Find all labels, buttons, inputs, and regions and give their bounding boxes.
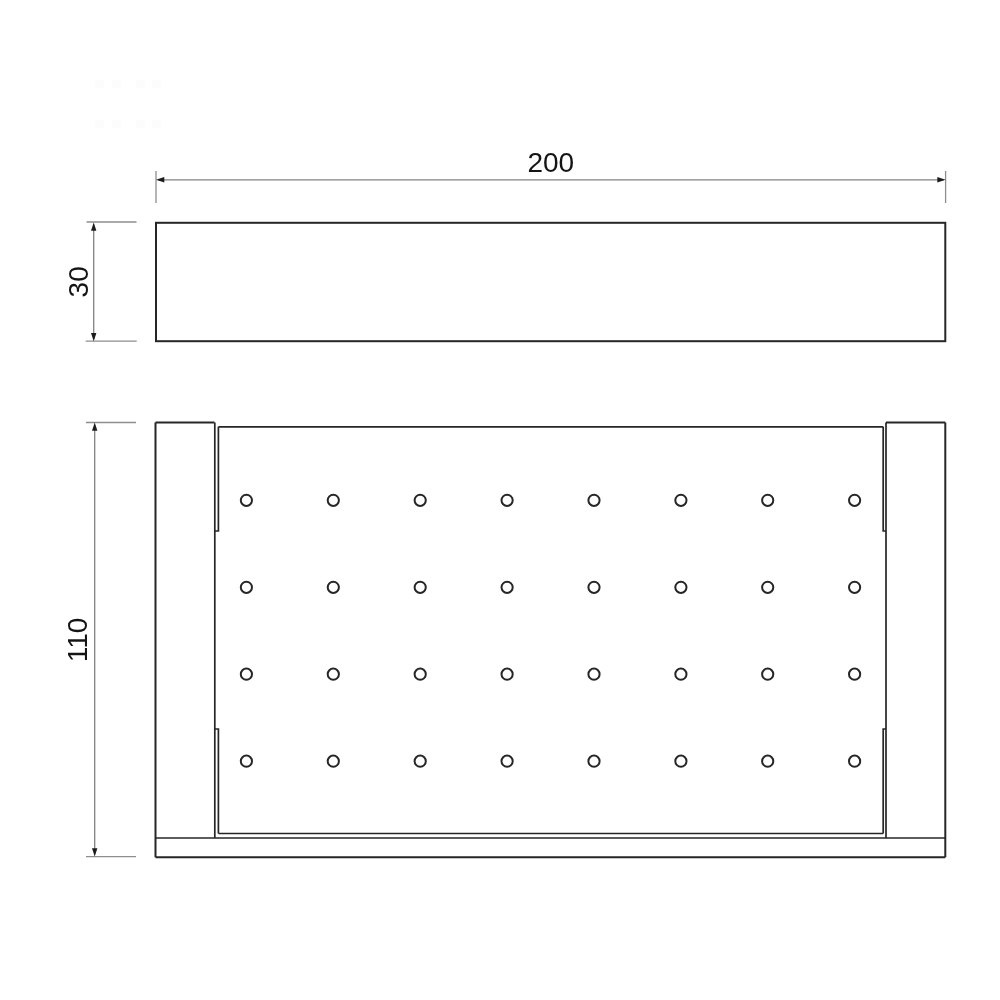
svg-text:30: 30 — [63, 266, 94, 297]
svg-text:200: 200 — [527, 147, 574, 178]
svg-text:110: 110 — [62, 618, 93, 663]
